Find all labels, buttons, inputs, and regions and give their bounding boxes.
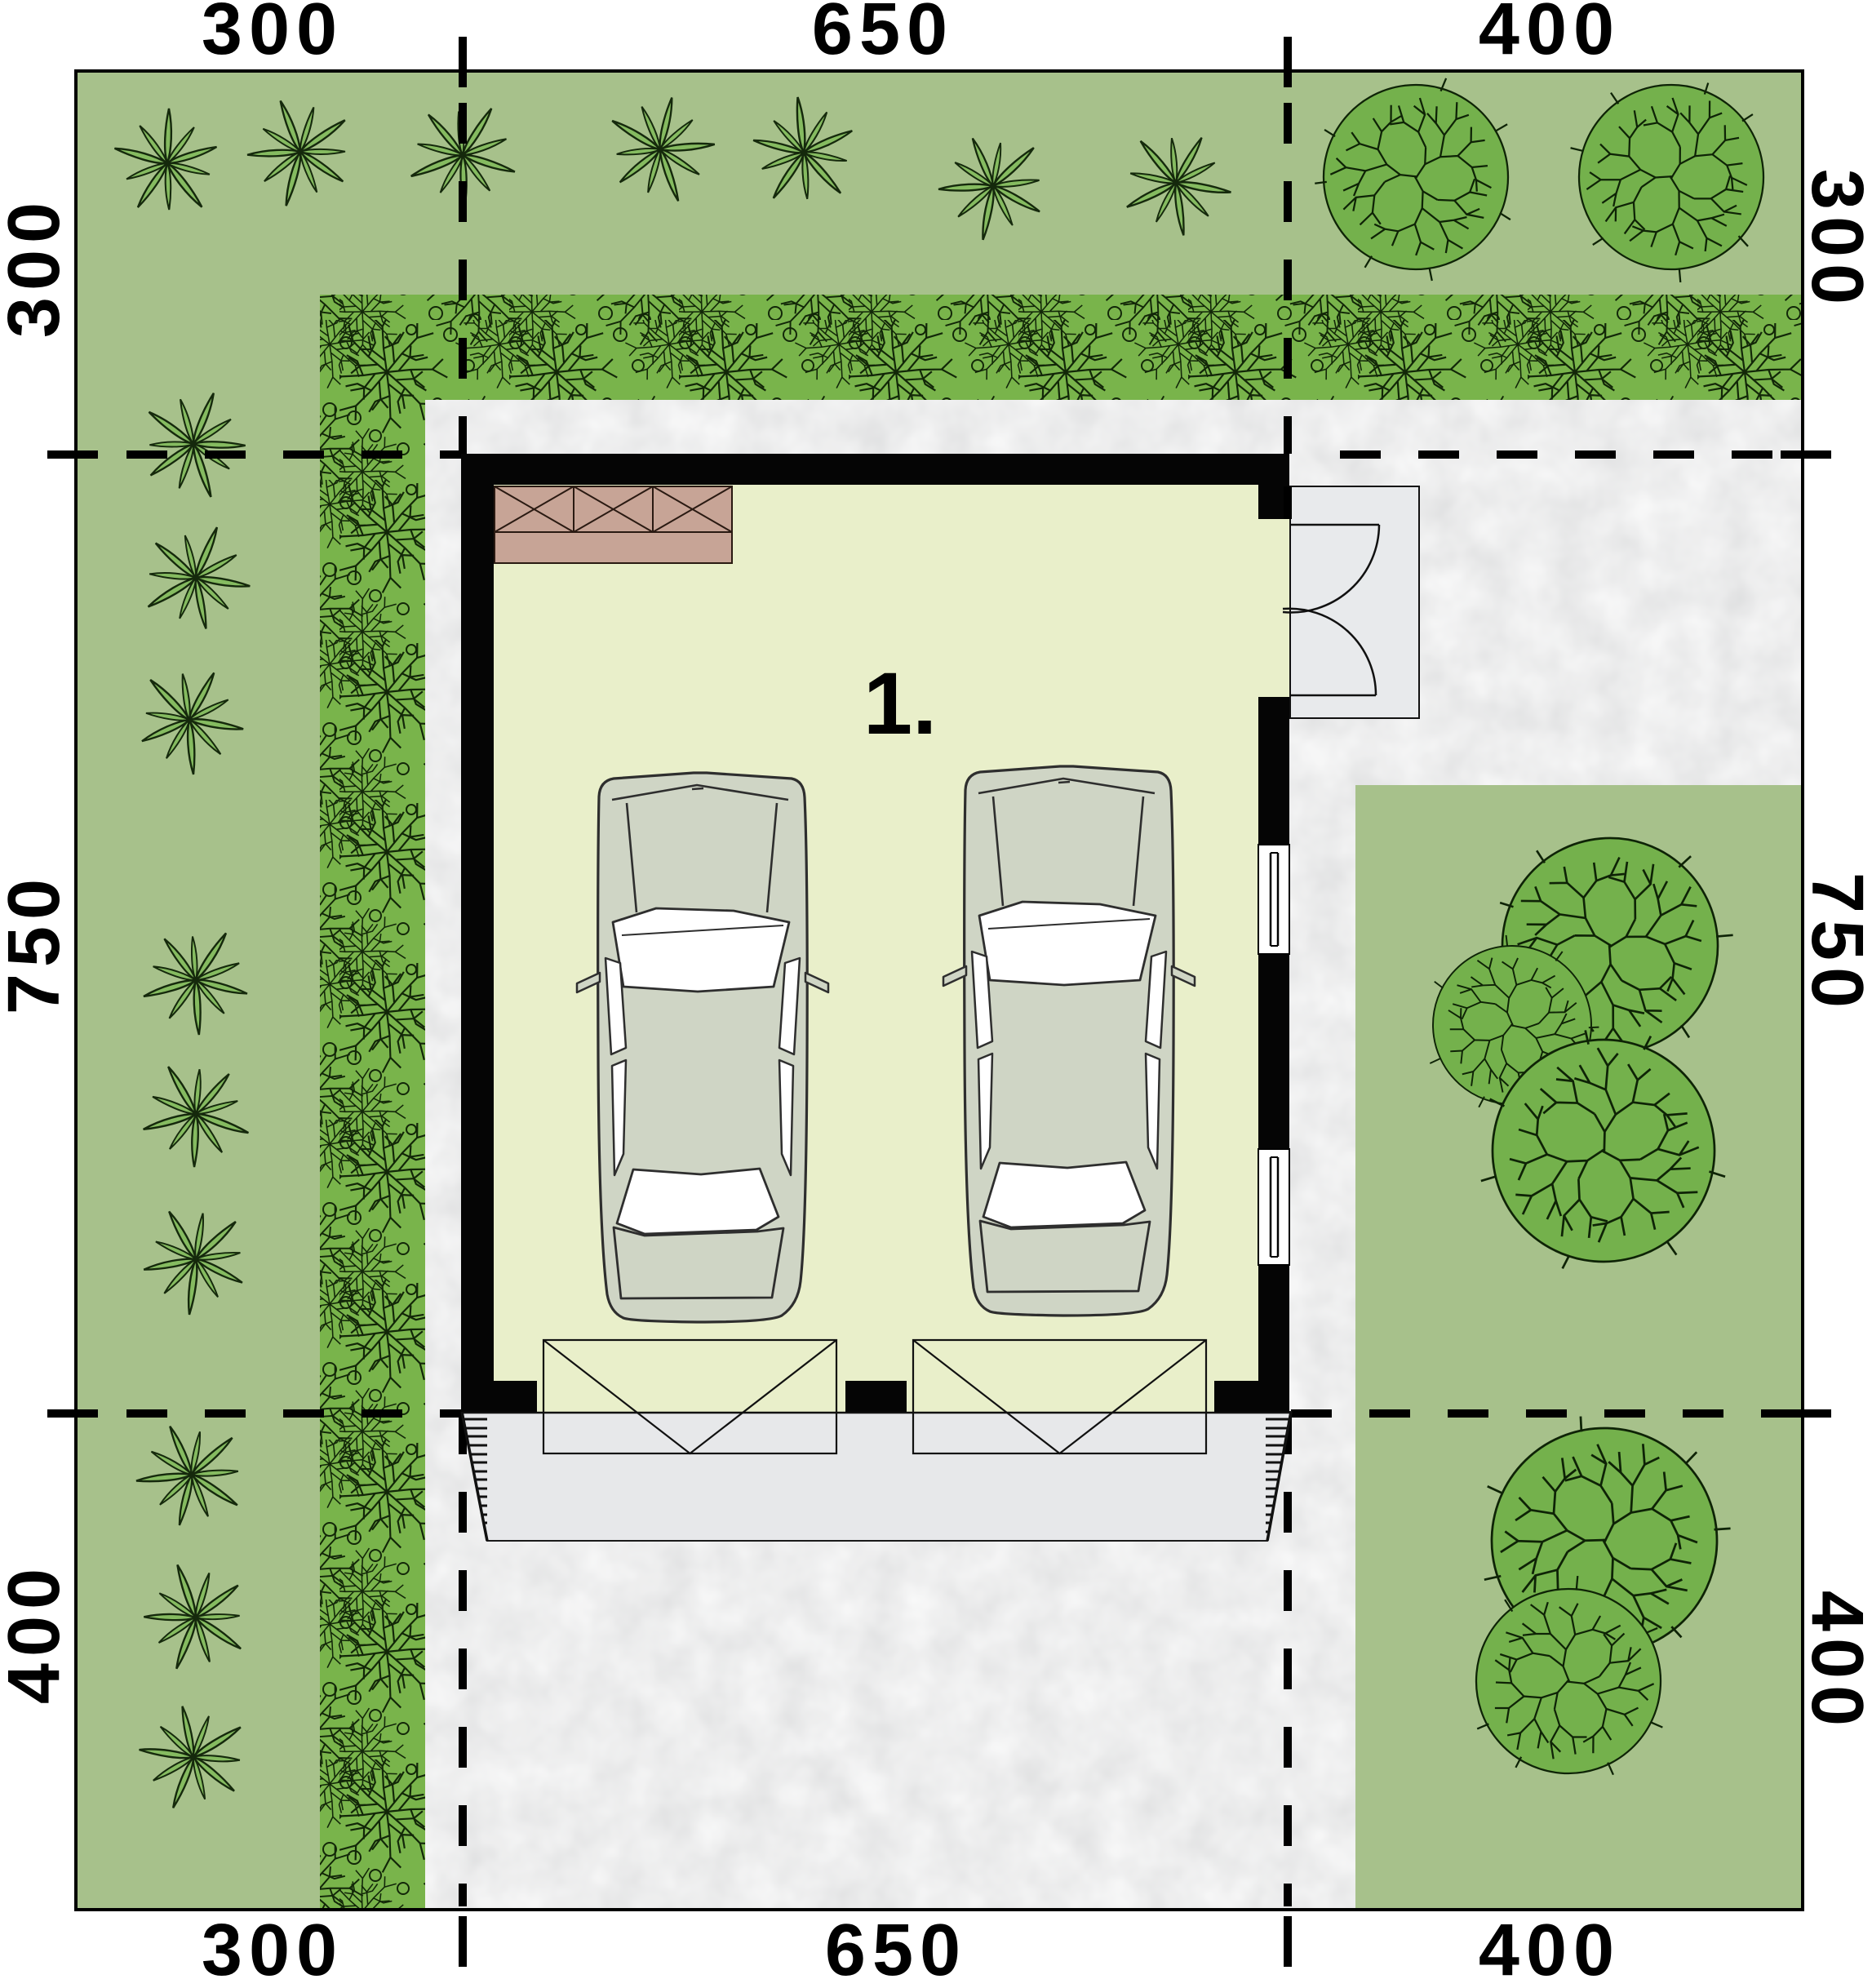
svg-text:400: 400 xyxy=(1796,1591,1872,1733)
svg-text:300: 300 xyxy=(1796,169,1872,311)
svg-text:300: 300 xyxy=(202,1910,344,1988)
svg-text:750: 750 xyxy=(0,872,75,1014)
svg-text:300: 300 xyxy=(202,0,344,70)
svg-text:400: 400 xyxy=(1479,0,1621,70)
svg-text:750: 750 xyxy=(1796,872,1872,1014)
svg-text:650: 650 xyxy=(825,1910,967,1988)
svg-text:1.: 1. xyxy=(863,654,937,752)
svg-text:400: 400 xyxy=(1479,1910,1621,1988)
svg-text:400: 400 xyxy=(0,1562,75,1704)
svg-text:300: 300 xyxy=(0,196,75,338)
svg-text:650: 650 xyxy=(812,0,954,70)
